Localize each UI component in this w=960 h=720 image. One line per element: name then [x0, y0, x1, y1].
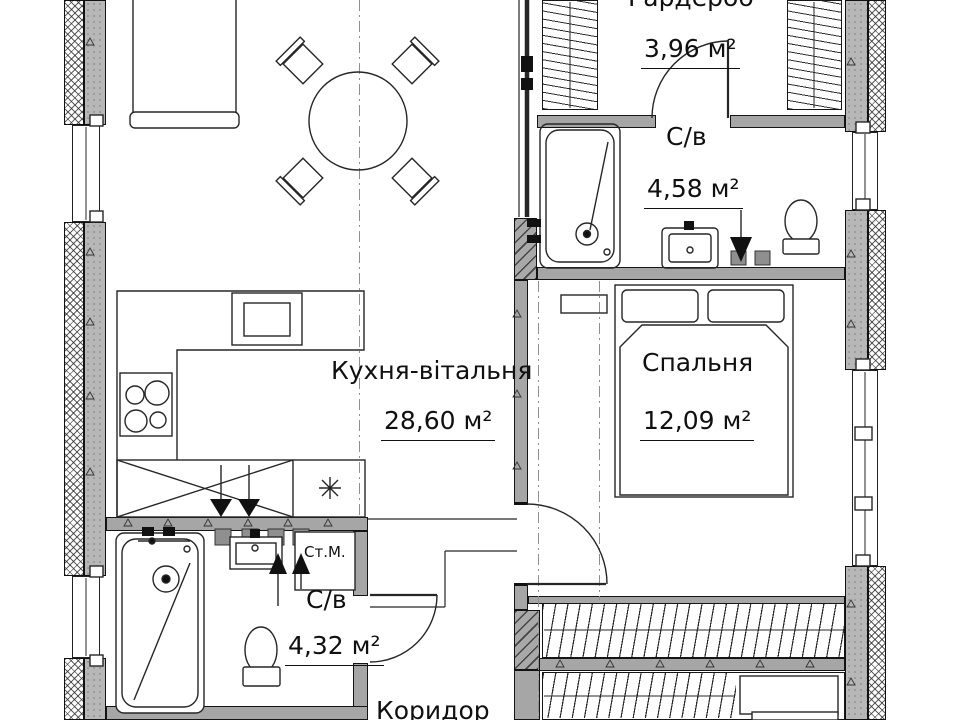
nightstand-icon: [561, 295, 607, 313]
room-label-wardrobe: Гардероб: [628, 0, 754, 12]
axis-line: [599, 281, 600, 600]
sofa-icon: [130, 0, 239, 128]
bedroom-door: [514, 502, 607, 586]
partition-wall: [514, 585, 528, 610]
exterior-wall-concrete: [84, 222, 106, 576]
window: [72, 576, 100, 658]
partition-wall: [730, 115, 845, 128]
exterior-wall-insulation: [868, 210, 886, 370]
exterior-wall-insulation: [868, 566, 886, 720]
kitchen-cabinet: [117, 460, 365, 517]
room-label-bathroom-bottom: С/в: [306, 585, 347, 614]
freezer-symbol: [319, 477, 341, 499]
partition-wall: [528, 658, 845, 671]
partition-wall: [537, 267, 845, 280]
exterior-wall-insulation: [64, 0, 84, 125]
room-area-wardrobe: 3,96 м²: [641, 34, 740, 69]
exterior-wall-insulation: [868, 0, 886, 132]
cooktop-icon: [120, 373, 172, 436]
plumbing-risers: [730, 210, 770, 265]
window: [72, 125, 100, 222]
toilet-icon: [243, 627, 280, 686]
exterior-wall-concrete: [845, 0, 868, 132]
kitchen-counter: [117, 291, 364, 517]
bed-icon: [561, 285, 793, 497]
dining-table-icon: [276, 37, 439, 205]
partition-wall: [353, 531, 368, 596]
floor-plan: Гардероб 3,96 м² С/в 4,58 м² Кухня-вітал…: [0, 0, 960, 720]
exterior-wall-insulation: [64, 658, 84, 720]
structural-pier: [514, 610, 540, 670]
window: [852, 370, 878, 566]
window-glazing: [86, 115, 872, 666]
washing-machine-spot: [295, 532, 355, 590]
sink-icon: [662, 221, 718, 268]
partition-wall: [514, 280, 528, 505]
room-area-kitchen-living: 28,60 м²: [381, 406, 495, 441]
shaft-partition: [519, 0, 533, 217]
window: [852, 132, 878, 210]
partition-wall: [514, 670, 540, 720]
built-in-closet: [542, 603, 845, 658]
partition-wall: [537, 115, 656, 128]
room-label-kitchen-living: Кухня-вітальня: [331, 356, 532, 385]
exterior-wall-concrete: [845, 210, 868, 370]
bathtub-icon: [116, 527, 204, 713]
room-label-corridor: Коридор: [376, 696, 490, 720]
bathtub-icon: [527, 124, 620, 268]
room-area-bedroom: 12,09 м²: [640, 406, 754, 441]
built-in-closet: [542, 672, 845, 720]
toilet-icon: [783, 200, 819, 254]
plumbing-chases: [215, 529, 309, 545]
vent-arrows-down: [210, 465, 260, 517]
sink-icon: [230, 529, 282, 569]
room-label-bathroom-top: С/в: [666, 122, 707, 151]
partition-wall: [106, 706, 368, 720]
wardrobe-shelving: [787, 0, 842, 110]
structural-pier: [514, 218, 537, 280]
room-area-bathroom-bottom: 4,32 м²: [285, 631, 384, 666]
partition-wall: [353, 663, 368, 710]
exterior-wall-insulation: [64, 222, 84, 576]
partition-wall: [106, 517, 368, 531]
room-label-bedroom: Спальня: [642, 348, 753, 377]
washing-machine-label: Ст.М.: [304, 543, 346, 561]
axis-line: [538, 281, 539, 720]
axis-line: [359, 0, 360, 519]
exterior-wall-concrete: [84, 658, 106, 720]
room-area-bathroom-top: 4,58 м²: [644, 174, 743, 209]
exterior-wall-concrete: [84, 0, 106, 125]
wardrobe-shelving: [542, 0, 598, 110]
closet-hatch: [543, 673, 736, 718]
corridor-boundary-lines: [368, 519, 517, 607]
exterior-wall-concrete: [845, 566, 868, 720]
